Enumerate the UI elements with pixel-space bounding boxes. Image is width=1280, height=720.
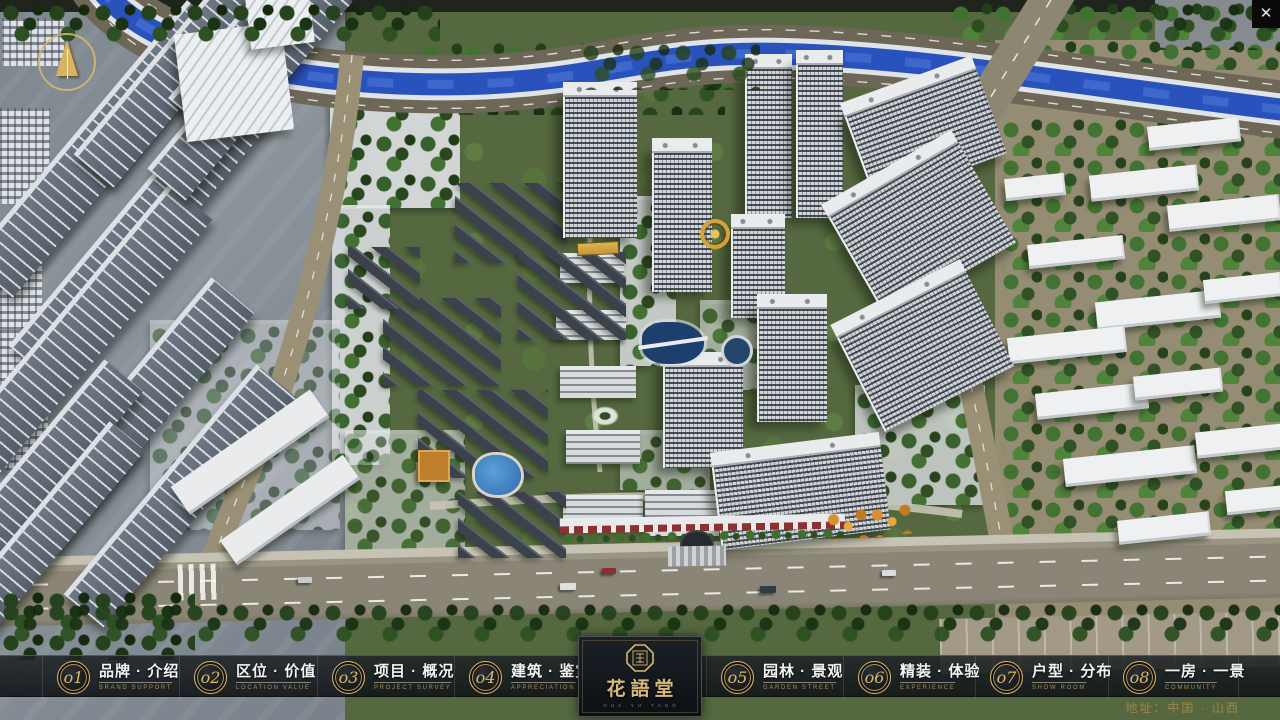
nav-label-en: GARDEN STREET bbox=[763, 682, 836, 691]
masterplan-app: ✕ o1品牌 · 介绍BRAND SUPPORTo2区位 · 价值LOCATIO… bbox=[0, 0, 1280, 720]
residential-tower bbox=[757, 304, 827, 422]
nav-label-cn: 一房 · 一景 bbox=[1165, 663, 1245, 680]
car bbox=[760, 586, 776, 593]
car bbox=[560, 583, 576, 590]
nav-label-en: SHOW ROOM bbox=[1032, 682, 1086, 691]
nav-label-en: BRAND SUPPORT bbox=[99, 682, 172, 691]
nav-number-badge: o8 bbox=[1123, 661, 1156, 694]
car bbox=[882, 570, 896, 576]
project-address: 地址：中国 · 山西 bbox=[0, 699, 1240, 716]
close-button[interactable]: ✕ bbox=[1252, 0, 1280, 28]
residential-tower bbox=[796, 60, 843, 218]
nav-label-cn: 品牌 · 介绍 bbox=[99, 663, 179, 680]
circular-plaza bbox=[724, 338, 750, 364]
nav-number-badge: o7 bbox=[990, 661, 1023, 694]
nav-label-cn: 精装 · 体验 bbox=[900, 663, 980, 680]
nav-label-en: LOCATION VALUE bbox=[236, 682, 311, 691]
garden-pavilion bbox=[585, 402, 625, 430]
nav-item-o5[interactable]: o5园林 · 景观GARDEN STREET bbox=[706, 656, 843, 698]
nav-label-cn: 户型 · 分布 bbox=[1032, 663, 1112, 680]
courtyard-houses bbox=[458, 492, 566, 558]
nav-number-badge: o4 bbox=[469, 661, 502, 694]
nav-item-o2[interactable]: o2区位 · 价值LOCATION VALUE bbox=[179, 656, 317, 698]
nav-item-o6[interactable]: o6精装 · 体验EXPERIENCE bbox=[843, 656, 975, 698]
car bbox=[298, 577, 312, 583]
city-highrise bbox=[245, 0, 315, 50]
courtyard-houses bbox=[348, 247, 420, 309]
entrance-plaza bbox=[668, 545, 726, 566]
nav-item-o3[interactable]: o3项目 · 概况PROJECT SURVEY bbox=[317, 656, 454, 698]
brand-title: 花語堂 bbox=[601, 674, 678, 701]
midrise-building bbox=[566, 430, 640, 464]
midrise-building bbox=[560, 366, 636, 398]
swimming-pool bbox=[475, 455, 521, 495]
nav-number-badge: o5 bbox=[721, 661, 754, 694]
nav-number-badge: o3 bbox=[332, 661, 365, 694]
courtyard-houses bbox=[383, 298, 501, 386]
central-pond bbox=[642, 322, 704, 364]
nav-number-badge: o1 bbox=[57, 661, 90, 694]
nav-item-o7[interactable]: o7户型 · 分布SHOW ROOM bbox=[975, 656, 1108, 698]
nav-label-en: APPRECIATION bbox=[511, 682, 575, 691]
residential-tower bbox=[563, 92, 637, 238]
nav-number-badge: o2 bbox=[194, 661, 227, 694]
nav-label-cn: 园林 · 景观 bbox=[763, 663, 843, 680]
orange-building bbox=[418, 450, 450, 482]
courtyard-houses bbox=[518, 252, 626, 340]
gold-landscape-ring bbox=[700, 219, 730, 249]
nav-item-o8[interactable]: o8一房 · 一景COMMUNITY bbox=[1108, 656, 1238, 698]
nav-label-en: EXPERIENCE bbox=[900, 682, 955, 691]
compass-icon bbox=[38, 33, 96, 91]
nav-label-cn: 区位 · 价值 bbox=[236, 663, 316, 680]
nav-label-cn: 项目 · 概况 bbox=[374, 663, 454, 680]
nav-item-o1[interactable]: o1品牌 · 介绍BRAND SUPPORT bbox=[42, 656, 179, 698]
nav-number-badge: o6 bbox=[858, 661, 891, 694]
seal-icon bbox=[626, 644, 654, 672]
nav-label-en: COMMUNITY bbox=[1165, 682, 1217, 691]
gold-shuttle-bus bbox=[577, 241, 620, 256]
crosswalk bbox=[178, 564, 223, 601]
residential-tower bbox=[745, 64, 792, 218]
nav-item-o4[interactable]: o4建筑 · 鉴赏APPRECIATION bbox=[454, 656, 592, 698]
residential-tower bbox=[652, 148, 712, 292]
nav-label-en: PROJECT SURVEY bbox=[374, 682, 451, 691]
car bbox=[602, 568, 616, 574]
courtyard-houses bbox=[455, 183, 567, 263]
